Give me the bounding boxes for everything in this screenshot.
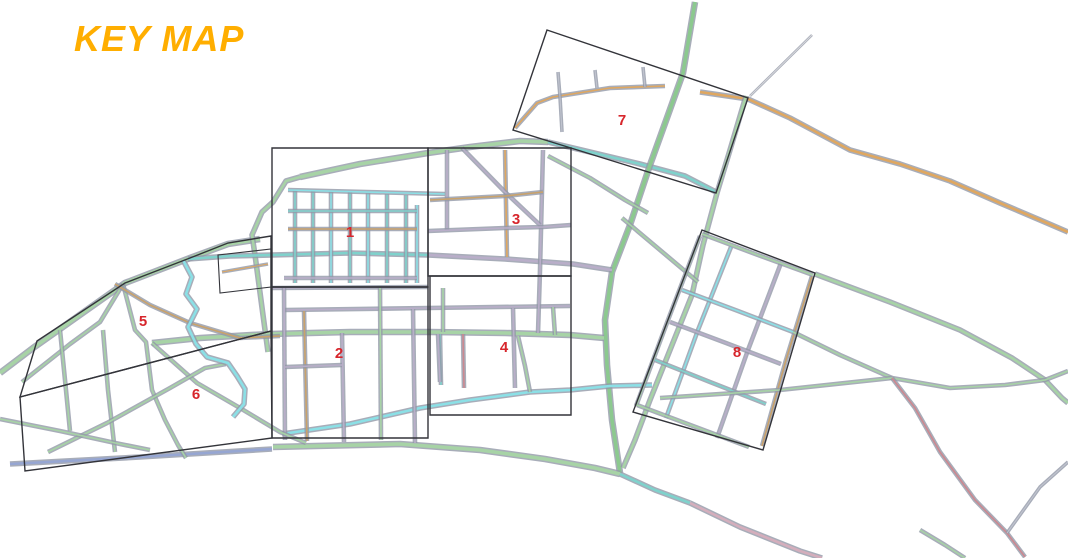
zone-label-8: 8 xyxy=(733,344,741,361)
road-segment xyxy=(282,385,652,434)
zone-label-2: 2 xyxy=(335,345,343,362)
road-segment xyxy=(702,234,813,275)
zone-label-3: 3 xyxy=(512,211,520,228)
zone-label-7: 7 xyxy=(618,112,626,129)
map-title: KEY MAP xyxy=(74,18,244,60)
road-segment xyxy=(222,264,268,272)
road-segment xyxy=(700,92,1068,232)
zone-label-5: 5 xyxy=(139,313,147,330)
key-map: 12345678 KEY MAP xyxy=(0,0,1068,558)
road-segment xyxy=(123,284,186,458)
road-segment xyxy=(123,284,186,458)
road-segment xyxy=(1007,462,1068,533)
zone-label-6: 6 xyxy=(192,386,200,403)
road-segment xyxy=(300,141,548,177)
road-segment xyxy=(920,530,965,558)
zone-label-4: 4 xyxy=(500,339,509,356)
road-segment xyxy=(380,288,381,440)
road-segment xyxy=(515,86,665,128)
road-segment xyxy=(750,35,812,96)
road-segment xyxy=(284,288,285,440)
zone-label-1: 1 xyxy=(346,224,354,241)
road-segment xyxy=(892,378,1025,557)
road-segment xyxy=(518,336,530,392)
map-canvas: 12345678 xyxy=(0,0,1068,558)
road-segment xyxy=(892,371,1068,388)
road-segment xyxy=(463,334,464,388)
zone-box-7 xyxy=(513,30,748,193)
